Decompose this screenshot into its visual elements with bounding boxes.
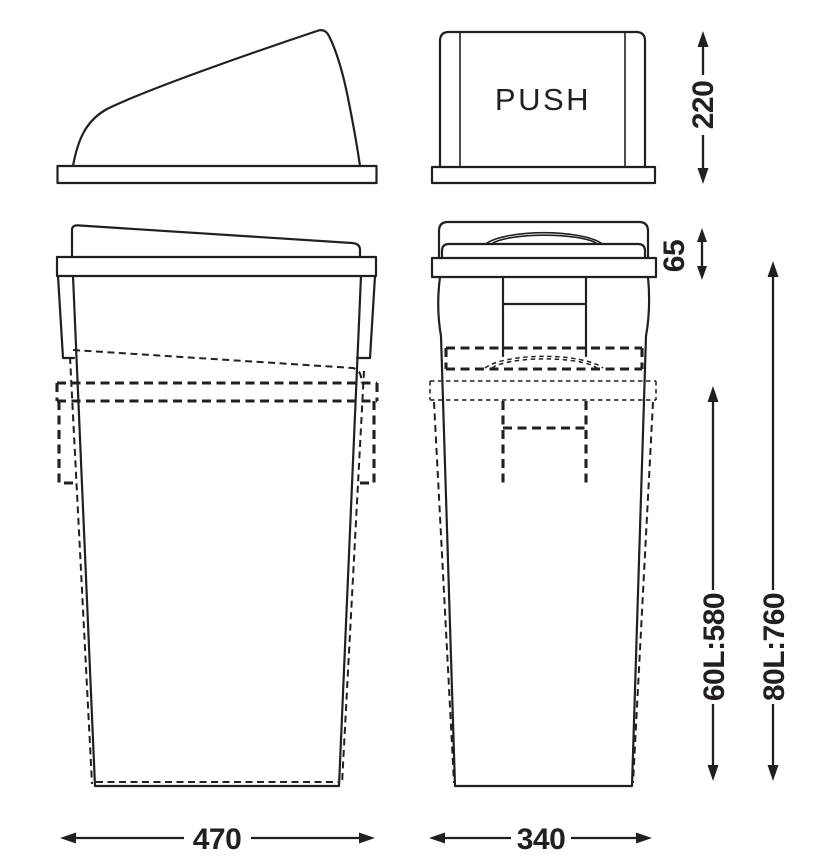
bin-side-body-outline: [73, 276, 361, 786]
dim-bin-depth-label: 470: [193, 823, 242, 856]
lid-front-view: PUSH: [432, 32, 655, 183]
hidden-channel: [503, 401, 586, 483]
dim-bin-width: 340: [429, 823, 652, 856]
arrow-down-icon: [698, 168, 709, 184]
dim-bin-depth: 470: [60, 823, 375, 856]
hidden-band-side: [57, 383, 377, 401]
lid-dome-outer: [487, 233, 601, 243]
back-frame-lines: [503, 277, 586, 356]
arrow-up-icon: [708, 386, 719, 402]
lid-side-base-rim: [58, 166, 377, 183]
hidden-bracket-left: [59, 401, 75, 483]
arrow-left-icon: [429, 833, 445, 844]
lid-side-view: [58, 30, 377, 183]
arrow-right-icon: [636, 833, 652, 844]
arrow-down-icon: [697, 266, 707, 280]
dim-height-60l: 60L:580: [698, 386, 731, 781]
arrow-up-icon: [698, 31, 709, 47]
outer-wall-left: [58, 276, 74, 358]
bin-side-view: [57, 225, 377, 786]
arrow-left-icon: [60, 833, 76, 844]
bin-side-rim: [57, 257, 376, 276]
hidden-band-front: [446, 348, 642, 369]
arrow-down-icon: [768, 765, 779, 781]
dim-height-60l-label: 60L:580: [698, 593, 731, 701]
dim-rim-height-label: 65: [658, 240, 691, 272]
hidden-lid-edge-line: [73, 350, 361, 383]
arrow-right-icon: [359, 833, 375, 844]
hidden-thin-band: [430, 381, 656, 400]
dim-lid-height-label: 220: [687, 81, 720, 130]
lid-tilted-outline: [72, 225, 360, 257]
push-label: PUSH: [495, 82, 591, 117]
bin-front-body-outline: [438, 277, 649, 786]
lid-top-outline: [439, 222, 648, 258]
hidden-liner-left: [70, 357, 92, 784]
arrow-up-icon: [697, 228, 707, 242]
dim-height-80l: 80L:760: [758, 261, 791, 781]
lid-side-profile: [73, 30, 360, 166]
arrow-down-icon: [708, 765, 719, 781]
dim-rim-height: 65: [658, 228, 707, 280]
dim-lid-height: 220: [687, 31, 720, 184]
drawing-canvas: PUSH 220: [0, 0, 833, 866]
hidden-liner-right: [342, 371, 364, 784]
hidden-dome-outer: [485, 356, 603, 368]
arrow-up-icon: [768, 261, 779, 277]
lid-front-base-rim: [432, 167, 655, 183]
lid-lower-band: [442, 244, 645, 258]
bin-front-view: [430, 222, 656, 786]
dim-height-80l-label: 80L:760: [758, 593, 791, 701]
technical-drawing: PUSH 220: [0, 0, 833, 866]
dim-bin-width-label: 340: [517, 823, 566, 856]
bin-front-rim: [432, 258, 656, 277]
